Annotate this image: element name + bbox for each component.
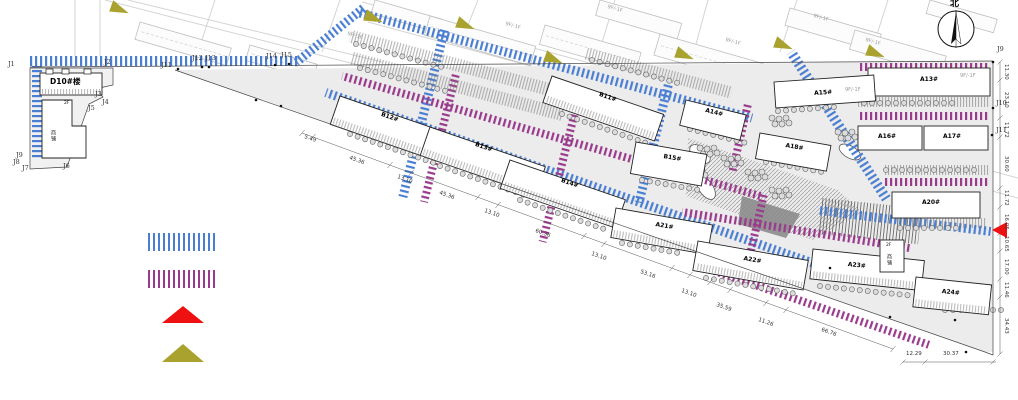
point-label-j9-left: J9 bbox=[16, 152, 23, 159]
point-label-j14: J14 bbox=[266, 53, 277, 60]
point-label-j5: J5 bbox=[88, 105, 95, 112]
site-plan-canvas: J1 J2 J3 J4 J5 J6 J7 J8 J9 J11 J12 J13 J… bbox=[0, 0, 1018, 400]
point-label-j7: J7 bbox=[22, 165, 29, 172]
dim-east-6: 10.65 bbox=[1003, 236, 1009, 252]
legend-blue-hatch-swatch bbox=[148, 233, 218, 251]
dim-east-3: 30.60 bbox=[1003, 156, 1009, 172]
point-label-j1: J1 bbox=[8, 61, 15, 68]
dim-corner-1: 30.37 bbox=[943, 352, 959, 358]
building-label-a16: A16# bbox=[878, 134, 896, 140]
point-label-j11-mid: J11 bbox=[161, 62, 172, 69]
dim-east-5: 16.05 bbox=[1003, 214, 1009, 230]
dim-east-7: 17.00 bbox=[1003, 259, 1009, 275]
floor-note: 9F/-1F bbox=[960, 74, 976, 79]
building-label-d10: D10#楼 bbox=[50, 78, 80, 86]
building-label-shop-right-floor: 2F bbox=[886, 244, 891, 249]
dim-corner-0: 12.29 bbox=[906, 352, 922, 358]
floor-note: 9F/-1F bbox=[845, 88, 861, 93]
point-label-j8: J8 bbox=[13, 159, 20, 166]
legend-yellow-arrow-swatch bbox=[162, 344, 204, 362]
point-label-j13: J13 bbox=[205, 55, 216, 62]
dim-east-9: 34.43 bbox=[1003, 318, 1009, 334]
building-label-shop-left: 商铺 bbox=[50, 130, 55, 142]
point-label-j15: J15 bbox=[281, 52, 292, 59]
dim-east-8: 11.46 bbox=[1003, 282, 1009, 298]
building-label-shop-right: 商铺 bbox=[886, 254, 891, 266]
building-label-a20: A20# bbox=[922, 200, 940, 206]
point-label-j2: J2 bbox=[104, 59, 111, 66]
point-label-j6: J6 bbox=[63, 163, 70, 170]
building-label-shop-left-floor: 2F bbox=[64, 102, 69, 107]
legend-purple-hatch-swatch bbox=[148, 270, 218, 288]
dim-east-4: 11.72 bbox=[1003, 190, 1009, 206]
north-label: 北 bbox=[950, 0, 959, 9]
building-label-a15: A15# bbox=[814, 90, 832, 97]
north-compass bbox=[938, 10, 974, 48]
legend-red-arrow-swatch bbox=[162, 306, 204, 323]
dim-east-2: 11.72 bbox=[1003, 122, 1009, 138]
dim-east-0: 11.30 bbox=[1003, 64, 1009, 80]
building-shop-right bbox=[880, 240, 904, 272]
site-plan-drawing bbox=[0, 0, 1018, 400]
point-label-j3: J3 bbox=[95, 91, 102, 98]
point-label-j12: J12 bbox=[192, 55, 203, 62]
building-label-a17: A17# bbox=[943, 134, 961, 140]
point-label-j9-right: J9 bbox=[997, 46, 1004, 53]
building-label-a13: A13# bbox=[920, 77, 938, 83]
dim-east-1: 23.10 bbox=[1003, 92, 1009, 108]
point-label-j4: J4 bbox=[102, 99, 109, 106]
